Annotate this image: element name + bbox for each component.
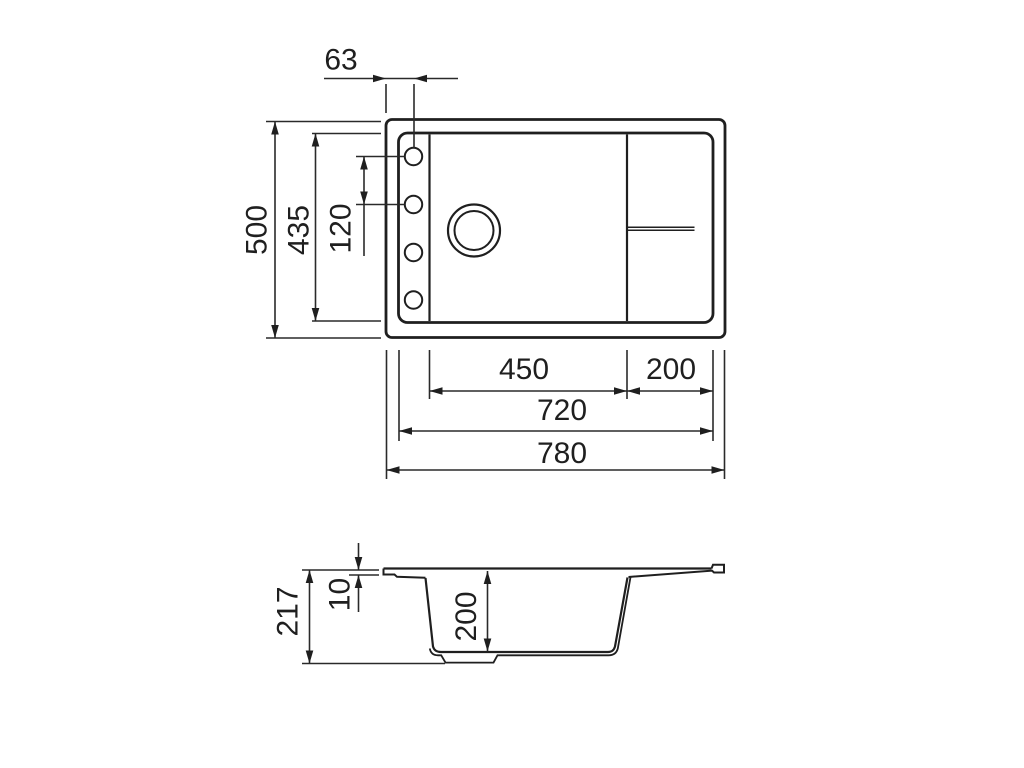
- dim-label-rim-thickness: 10: [324, 578, 357, 611]
- arrowhead: [373, 75, 386, 83]
- drawing-sheet: 63 500 435 120: [0, 0, 1024, 768]
- arrowhead: [700, 427, 713, 435]
- arrowhead: [414, 75, 427, 83]
- tap-hole-2: [405, 196, 422, 213]
- arrowhead: [271, 122, 279, 135]
- dim-hole-pitch: 120: [325, 157, 405, 257]
- right-rim-and-drainboard-section: [629, 565, 725, 577]
- arrowhead: [271, 325, 279, 338]
- top-view: 63 500 435 120: [241, 44, 726, 480]
- dim-bowl-width: 450: [430, 353, 628, 395]
- arrowhead: [399, 427, 412, 435]
- dim-label-outer-width: 780: [537, 437, 587, 470]
- arrowhead: [387, 466, 400, 474]
- arrowhead: [306, 570, 314, 583]
- dim-label-total-height: 217: [272, 586, 305, 636]
- arrowhead: [627, 387, 640, 395]
- dim-drainboard-width: 200: [627, 353, 713, 395]
- arrowhead: [312, 134, 320, 147]
- dim-rim-thickness: 10: [324, 543, 380, 612]
- arrowhead: [312, 308, 320, 321]
- dim-label-bowl-depth: 200: [450, 591, 483, 641]
- sink-dimension-drawing: 63 500 435 120: [0, 0, 1024, 768]
- dim-outer-width: 780: [387, 437, 725, 474]
- dim-label-hole-offset: 63: [324, 44, 357, 77]
- tap-hole-4: [405, 291, 422, 308]
- sink-outer-rim: [386, 120, 725, 338]
- dim-label-outer-height: 500: [241, 205, 274, 255]
- arrowhead: [430, 387, 443, 395]
- dim-inner-width: 720: [399, 394, 713, 435]
- dim-label-inner-height: 435: [283, 205, 316, 255]
- arrowhead: [355, 557, 363, 570]
- dim-label-inner-width: 720: [537, 394, 587, 427]
- arrowhead: [700, 387, 713, 395]
- arrowhead: [360, 157, 368, 170]
- arrowhead: [712, 466, 725, 474]
- arrowhead: [614, 387, 627, 395]
- side-view: 217 10 200: [272, 543, 725, 664]
- arrowhead: [484, 639, 492, 652]
- arrowhead: [484, 571, 492, 584]
- left-rim-section: [384, 569, 426, 578]
- arrowhead: [360, 192, 368, 205]
- dim-label-hole-pitch: 120: [325, 203, 358, 253]
- dim-label-bowl-width: 450: [499, 353, 549, 386]
- dim-label-drainboard-width: 200: [646, 353, 696, 386]
- arrowhead: [306, 651, 314, 664]
- tap-hole-1: [405, 148, 422, 165]
- dim-bowl-depth: 200: [450, 571, 491, 652]
- drain-outer-circle: [448, 205, 500, 257]
- tap-hole-3: [405, 244, 422, 261]
- drain-inner-circle: [455, 211, 494, 250]
